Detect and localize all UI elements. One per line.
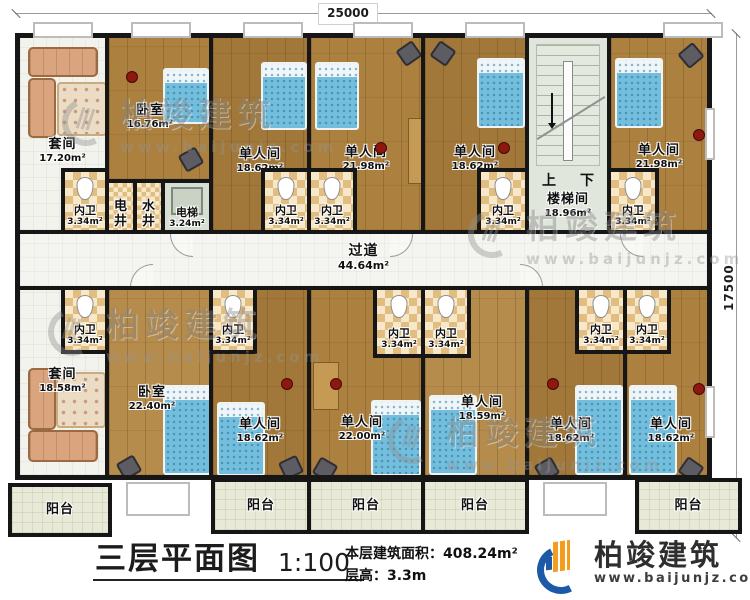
room-label: 内卫 3.34m²: [611, 205, 655, 227]
bed: [163, 68, 209, 124]
balcony-name: 阳台: [425, 499, 525, 514]
room-area: 3.34m²: [627, 336, 667, 346]
window: [705, 108, 715, 160]
bay-window: [126, 482, 190, 516]
appliance-dot: [498, 142, 510, 154]
appliance-dot: [547, 378, 559, 390]
room-name: 内卫: [627, 324, 667, 336]
room-label: 内卫 3.34m²: [311, 205, 353, 227]
room-area: 3.34m²: [579, 336, 623, 346]
room-bedroom-bottom: 卧室 22.40m²: [109, 290, 209, 475]
balcony-label: 阳台: [311, 499, 421, 514]
room-bath-top-2: 内卫 3.34m²: [311, 168, 357, 230]
floor-height-text: 层高：3.3m: [345, 565, 518, 587]
balcony-2: 阳台: [211, 478, 311, 534]
room-shaft-electrical: 电井: [109, 183, 133, 230]
stairs-down-label: 下: [580, 170, 594, 190]
toilet: [639, 295, 656, 318]
appliance-dot: [375, 142, 387, 154]
room-name: 内卫: [425, 328, 467, 340]
bed: [261, 62, 307, 130]
room-label: 内卫 3.34m²: [481, 205, 525, 227]
room-name: 过道: [20, 244, 707, 260]
room-name: 单人间: [213, 148, 307, 163]
title-group: 三层平面图 1:100: [93, 544, 364, 581]
balcony-3: 阳台: [307, 478, 425, 534]
room-name: 套间: [20, 138, 105, 153]
brand-text: 柏竣建筑 www.baijunjz.com: [594, 540, 750, 585]
appliance-dot: [126, 71, 138, 83]
room-label: 楼梯间 18.96m²: [529, 193, 607, 219]
bed: [315, 62, 359, 130]
room-name: 内卫: [481, 205, 525, 217]
floor-area-text: 本层建筑面积：408.24m²: [345, 543, 518, 565]
rug: [57, 82, 105, 136]
toilet: [225, 295, 242, 318]
toilet: [77, 295, 94, 318]
chair: [429, 40, 456, 67]
room-name: 内卫: [65, 205, 105, 217]
room-name: 单人间: [311, 146, 421, 161]
bed: [217, 402, 265, 475]
stair-direction-arrow: [551, 93, 553, 127]
room-area: 18.96m²: [529, 208, 607, 219]
appliance-dot: [693, 383, 705, 395]
room-area: 3.34m²: [481, 217, 525, 227]
door-arc: [520, 264, 543, 286]
room-label: 套间 17.20m²: [20, 138, 105, 164]
door-arc: [620, 234, 643, 257]
room-area: 3.34m²: [65, 217, 105, 227]
rug: [56, 372, 105, 428]
bed: [575, 385, 623, 475]
right-dimension-line: [736, 33, 737, 538]
room-label: 内卫 3.34m²: [65, 205, 105, 227]
room-bath-bottom-1: 内卫 3.34m²: [213, 290, 257, 354]
toilet: [278, 177, 295, 200]
room-elevator: 电梯 3.24m²: [165, 183, 209, 230]
room-name: 内卫: [265, 205, 307, 217]
sofa: [28, 430, 98, 462]
appliance-dot: [693, 129, 705, 141]
room-bath-suite-top: 内卫 3.34m²: [61, 168, 105, 230]
room-name: 内卫: [579, 324, 623, 336]
floor-plan-canvas: 25000 17500 套间 17.20m² 卧室 16.76m²: [0, 0, 750, 589]
toilet: [438, 295, 455, 318]
balcony-label: 阳台: [639, 499, 738, 514]
sofa: [28, 47, 98, 77]
page-title: 三层平面图: [95, 544, 260, 575]
room-label: 内卫 3.34m²: [627, 324, 667, 346]
room-name: 内卫: [611, 205, 655, 217]
room-label: 内卫 3.34m²: [265, 205, 307, 227]
desk: [408, 118, 421, 184]
balcony-5: 阳台: [635, 478, 742, 534]
room-area: 3.34m²: [377, 340, 421, 350]
room-label: 内卫 3.34m²: [213, 324, 253, 346]
room-bath-top-4: 内卫 3.34m²: [611, 168, 659, 230]
toilet: [593, 295, 610, 318]
balcony-4: 阳台: [421, 478, 529, 534]
room-name: 内卫: [311, 205, 353, 217]
window: [131, 22, 191, 38]
stair-direction-labels: 上 下: [529, 170, 607, 190]
room-area: 3.34m²: [611, 217, 655, 227]
room-area: 3.34m²: [265, 217, 307, 227]
brand-logo-icon: [537, 539, 585, 587]
brand-name: 柏竣建筑: [594, 540, 750, 570]
balcony-1: 阳台: [8, 483, 112, 537]
chair: [677, 456, 704, 475]
appliance-dot: [281, 378, 293, 390]
room-label: 内卫 3.34m²: [425, 328, 467, 350]
room-bath-bottom-5: 内卫 3.34m²: [627, 290, 671, 354]
window: [663, 22, 723, 38]
elevator-car: [171, 187, 203, 215]
room-area: 44.64m²: [20, 260, 707, 272]
toilet: [495, 177, 512, 200]
chair: [395, 40, 421, 67]
stairs: [536, 44, 600, 166]
window: [243, 22, 303, 38]
room-name: 单人间: [611, 144, 707, 159]
balcony-name: 阳台: [311, 499, 421, 514]
window: [33, 22, 93, 38]
right-dimension-value: 17500: [722, 258, 736, 318]
room-area: 3.34m²: [65, 336, 105, 346]
room-label: 内卫 3.34m²: [65, 324, 105, 346]
room-corridor: 过道 44.64m²: [20, 234, 707, 286]
balcony-label: 阳台: [215, 499, 307, 514]
stair-rail: [563, 61, 573, 161]
room-label: 过道 44.64m²: [20, 244, 707, 272]
chair: [116, 454, 143, 475]
stairs-up-label: 上: [542, 170, 556, 190]
bed: [163, 385, 209, 475]
brand-website: www.baijunjz.com: [594, 571, 750, 586]
bed: [477, 58, 525, 128]
room-name: 内卫: [377, 328, 421, 340]
room-label: 内卫 3.34m²: [377, 328, 421, 350]
toilet: [391, 295, 408, 318]
room-bath-top-3: 内卫 3.34m²: [477, 168, 525, 230]
toilet: [77, 177, 94, 200]
balcony-name: 阳台: [12, 503, 108, 518]
building-outline: 套间 17.20m² 卧室 16.76m² 内卫 3.34m² 电井 水井: [15, 33, 712, 480]
room-area: 3.34m²: [213, 336, 253, 346]
brand-building-icon: [553, 540, 570, 572]
room-label: 电井: [109, 200, 133, 229]
balcony-name: 阳台: [215, 499, 307, 514]
appliance-dot: [330, 378, 342, 390]
door-arc: [390, 234, 413, 257]
chair: [178, 146, 205, 172]
bed: [371, 400, 421, 475]
door-arc: [130, 264, 153, 286]
room-stairwell: 上 下 楼梯间 18.96m²: [529, 38, 607, 230]
balcony-label: 阳台: [425, 499, 525, 514]
room-area: 3.34m²: [425, 340, 467, 350]
balcony-name: 阳台: [639, 499, 738, 514]
room-label: 单人间 21.98m²: [611, 144, 707, 170]
room-bedroom-top: 卧室 16.76m²: [109, 38, 209, 179]
room-area: 17.20m²: [20, 153, 105, 164]
bed: [615, 58, 663, 128]
room-name: 单人间: [425, 146, 525, 161]
room-name: 楼梯间: [529, 193, 607, 208]
room-shaft-water: 水井: [137, 183, 161, 230]
window: [705, 386, 715, 438]
chair: [534, 456, 561, 475]
bed: [629, 385, 677, 475]
room-label: 水井: [137, 200, 161, 229]
room-name: 电井: [109, 200, 133, 229]
bed: [429, 395, 477, 475]
balcony-label: 阳台: [12, 503, 108, 518]
room-bath-bottom-3: 内卫 3.34m²: [425, 290, 471, 358]
scale-label: 1:100: [278, 550, 350, 575]
chair: [278, 455, 304, 475]
room-area: 3.34m²: [311, 217, 353, 227]
brand-building-icon-small: [546, 557, 552, 571]
sofa: [28, 78, 56, 138]
room-label: 内卫 3.34m²: [579, 324, 623, 346]
room-name: 水井: [137, 200, 161, 229]
room-bath-bottom-4: 内卫 3.34m²: [575, 290, 623, 354]
toilet: [625, 177, 642, 200]
room-bath-bottom-2: 内卫 3.34m²: [373, 290, 421, 358]
sofa: [28, 368, 56, 430]
toilet: [324, 177, 341, 200]
chair: [677, 42, 705, 69]
plan-info: 本层建筑面积：408.24m² 层高：3.3m: [345, 543, 518, 588]
window: [465, 22, 525, 38]
brand-logo: 柏竣建筑 www.baijunjz.com: [537, 539, 750, 587]
door-arc: [170, 234, 193, 257]
chair: [312, 456, 339, 475]
bay-window: [543, 482, 607, 516]
room-area: 3.24m²: [165, 219, 209, 229]
room-name: 内卫: [65, 324, 105, 336]
window: [353, 22, 413, 38]
room-name: 内卫: [213, 324, 253, 336]
room-bath-top-1: 内卫 3.34m²: [261, 168, 307, 230]
room-bath-bottom-suite: 内卫 3.34m²: [61, 290, 105, 354]
